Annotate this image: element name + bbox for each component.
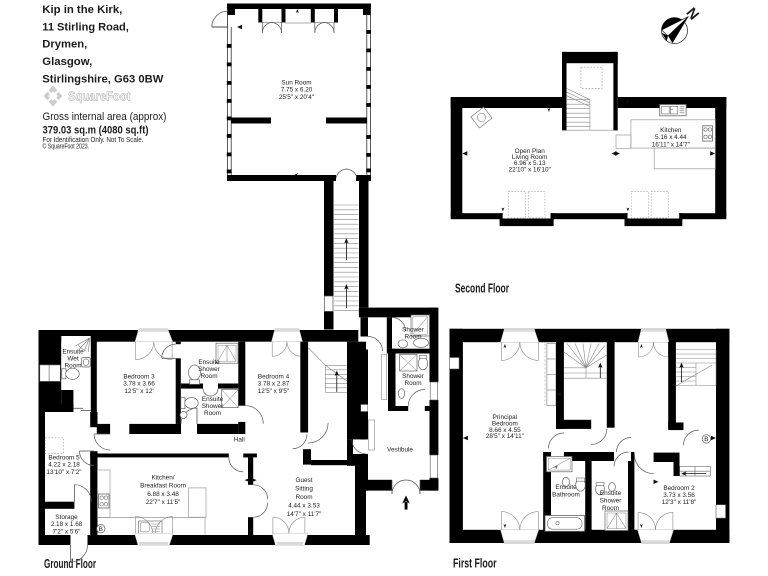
svg-text:3.78 x 2.87: 3.78 x 2.87 xyxy=(258,381,290,388)
svg-text:Room: Room xyxy=(404,380,421,387)
svg-text:Ensuite: Ensuite xyxy=(555,484,577,491)
svg-text:22'10" x 16'10": 22'10" x 16'10" xyxy=(509,166,551,173)
svg-text:Wet: Wet xyxy=(67,356,78,363)
svg-text:Room: Room xyxy=(200,373,217,380)
svg-text:12'5" x 12': 12'5" x 12' xyxy=(124,388,153,395)
svg-text:Ensuite: Ensuite xyxy=(600,490,622,497)
svg-text:Shower: Shower xyxy=(202,403,225,410)
svg-text:Room: Room xyxy=(295,494,312,501)
svg-text:Shower: Shower xyxy=(402,327,425,334)
svg-text:25'5" x 20'4": 25'5" x 20'4" xyxy=(279,94,314,101)
svg-text:12'3" x 11'8": 12'3" x 11'8" xyxy=(662,499,697,506)
svg-text:4.22 x 2.18: 4.22 x 2.18 xyxy=(48,462,80,469)
svg-text:4.44 x 3.53: 4.44 x 3.53 xyxy=(288,503,320,510)
svg-text:Kip in the Kirk,: Kip in the Kirk, xyxy=(42,4,122,16)
svg-text:Ground Floor: Ground Floor xyxy=(44,557,96,571)
svg-text:SquareFoot: SquareFoot xyxy=(68,89,131,104)
svg-text:28'5" x 14'11": 28'5" x 14'11" xyxy=(486,433,524,440)
svg-text:B: B xyxy=(704,436,708,443)
svg-text:Hall: Hall xyxy=(234,437,245,444)
svg-text:Kitchen: Kitchen xyxy=(660,127,682,134)
svg-text:Bedroom 5: Bedroom 5 xyxy=(48,455,80,462)
svg-text:Vestibule: Vestibule xyxy=(387,447,413,454)
svg-text:11 Stirling Road,: 11 Stirling Road, xyxy=(42,21,129,33)
svg-text:B: B xyxy=(99,526,103,533)
svg-text:Guest: Guest xyxy=(295,477,312,484)
svg-text:Bedroom 2: Bedroom 2 xyxy=(663,485,695,492)
svg-text:Gross internal area (approx): Gross internal area (approx) xyxy=(43,111,167,123)
svg-text:16'11" x 14'7": 16'11" x 14'7" xyxy=(652,141,690,148)
svg-text:3.78 x 3.66: 3.78 x 3.66 xyxy=(123,381,155,388)
svg-text:7.75 x 6.20: 7.75 x 6.20 xyxy=(281,87,313,94)
svg-text:Room: Room xyxy=(404,334,421,341)
svg-text:Bedroom 3: Bedroom 3 xyxy=(123,374,155,381)
svg-text:3.73 x 3.56: 3.73 x 3.56 xyxy=(663,492,695,499)
svg-text:Kitchen/: Kitchen/ xyxy=(151,475,174,482)
svg-text:© SquareFoot 2023.: © SquareFoot 2023. xyxy=(43,142,90,151)
svg-text:22'7" x 11'5": 22'7" x 11'5" xyxy=(146,499,181,506)
svg-text:Shower: Shower xyxy=(198,366,221,373)
svg-text:Bathroom: Bathroom xyxy=(552,492,580,499)
svg-text:12'5" x 9'5": 12'5" x 9'5" xyxy=(258,388,290,395)
svg-text:Bedroom 4: Bedroom 4 xyxy=(258,374,290,381)
svg-text:Ensuite: Ensuite xyxy=(202,396,224,403)
svg-text:Room: Room xyxy=(204,410,221,417)
svg-text:Shower: Shower xyxy=(402,373,425,380)
svg-text:Sitting: Sitting xyxy=(295,486,313,493)
svg-text:Drymen,: Drymen, xyxy=(42,39,87,51)
svg-text:Ensuite: Ensuite xyxy=(62,349,84,356)
svg-text:Room: Room xyxy=(64,363,81,370)
svg-text:7'2" x 5'6": 7'2" x 5'6" xyxy=(53,528,81,535)
svg-text:Shower: Shower xyxy=(600,498,623,505)
svg-text:Stirlingshire, G63 0BW: Stirlingshire, G63 0BW xyxy=(42,73,163,85)
svg-text:First Floor: First Floor xyxy=(453,557,497,571)
svg-text:Second Floor: Second Floor xyxy=(455,281,509,295)
svg-text:2.18 x 1.68: 2.18 x 1.68 xyxy=(51,521,83,528)
svg-text:Sun Room: Sun Room xyxy=(281,80,311,87)
svg-text:6.88 x 3.48: 6.88 x 3.48 xyxy=(147,491,179,498)
svg-text:Ensuite: Ensuite xyxy=(198,359,220,366)
svg-text:Storage: Storage xyxy=(55,514,78,521)
svg-text:Glasgow,: Glasgow, xyxy=(42,56,92,68)
svg-text:13'10" x 7'2": 13'10" x 7'2" xyxy=(46,469,81,476)
svg-text:Breakfast Room: Breakfast Room xyxy=(140,483,186,490)
svg-text:Room: Room xyxy=(602,505,619,512)
svg-text:5.16 x 4.44: 5.16 x 4.44 xyxy=(655,134,687,141)
